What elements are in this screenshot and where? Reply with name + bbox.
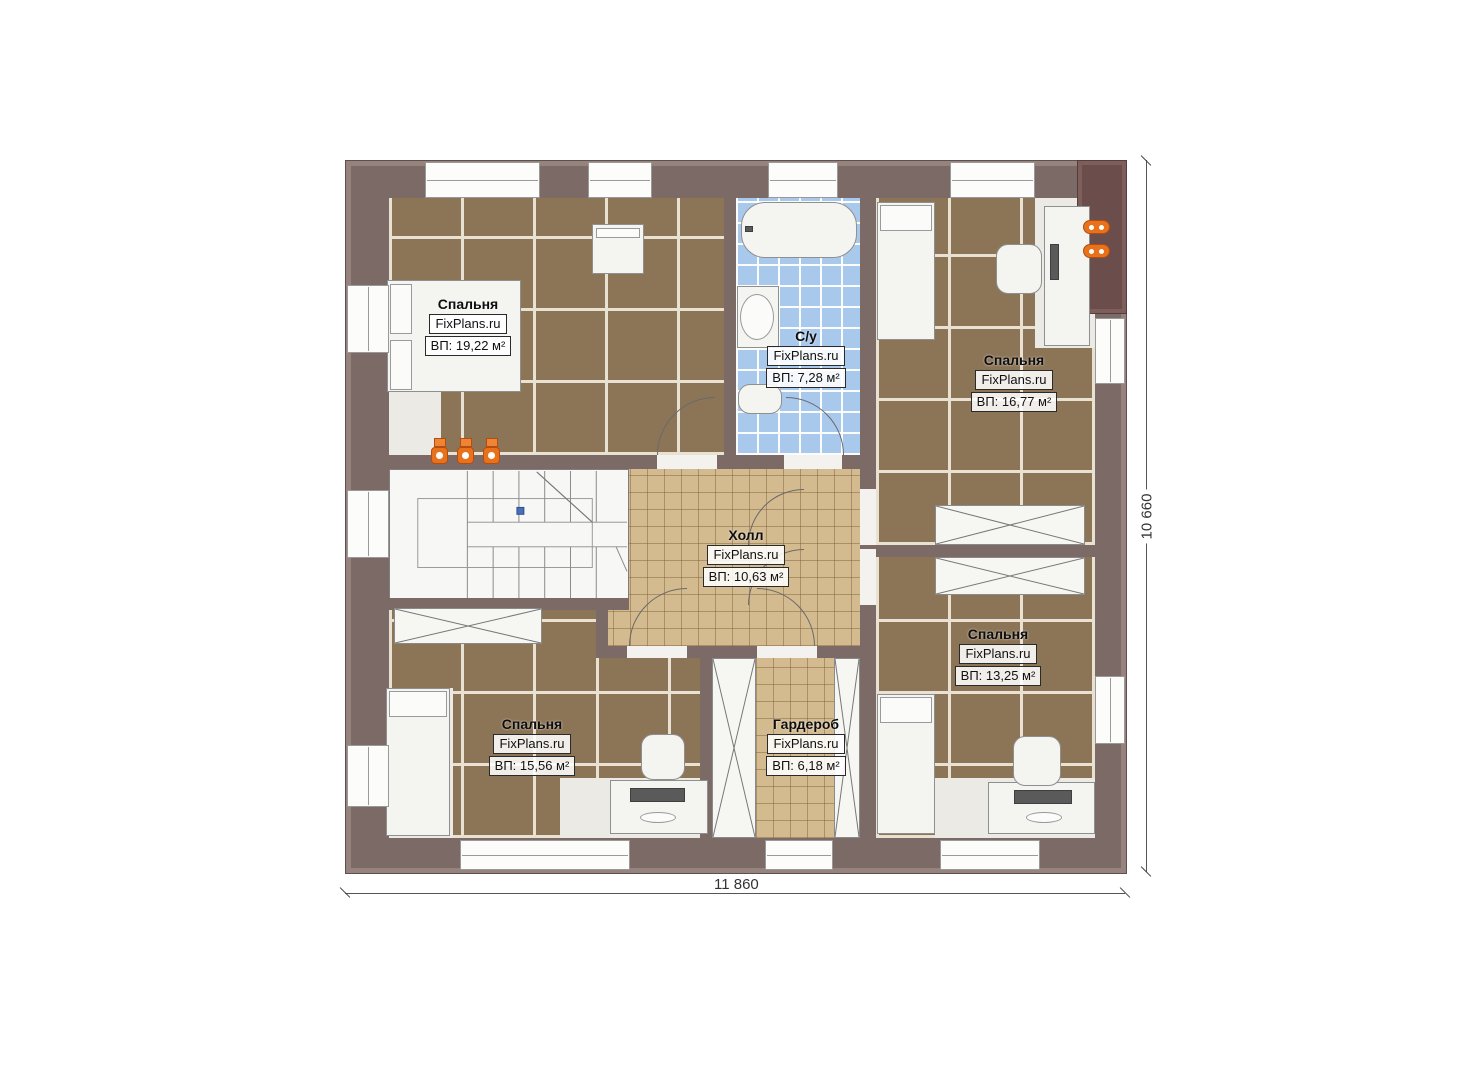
door-bedroom-tr [860, 489, 876, 545]
room-area: ВП: 7,28 м² [766, 368, 845, 388]
room-name: Спальня [968, 626, 1028, 642]
dimension-width-label: 11 860 [710, 876, 763, 893]
window [588, 162, 652, 198]
window [347, 285, 389, 353]
window [1095, 676, 1125, 744]
dimension-height-label: 10 660 [1138, 490, 1155, 544]
radiator [430, 438, 450, 464]
pillow [880, 697, 932, 723]
door-bathroom [784, 455, 842, 469]
window [347, 745, 389, 807]
wardrobe-cabinet [394, 608, 542, 644]
door-bedroom-tl [657, 455, 717, 469]
wall-tr-br [876, 545, 1095, 557]
chair [641, 734, 685, 780]
pillow [389, 691, 447, 717]
window [347, 490, 389, 558]
window [940, 840, 1040, 870]
room-area: ВП: 10,63 м² [703, 567, 790, 587]
door-bedroom-bl [627, 646, 687, 658]
room-brand: FixPlans.ru [975, 370, 1052, 390]
wardrobe-cabinet [935, 557, 1085, 595]
wardrobe-cabinet [935, 505, 1085, 545]
room-brand: FixPlans.ru [493, 734, 570, 754]
radiator [482, 438, 502, 464]
room-area: ВП: 13,25 м² [955, 666, 1042, 686]
room-label-bathroom: С/у FixPlans.ru ВП: 7,28 м² [746, 328, 866, 388]
keyboard [1014, 790, 1072, 804]
chair [1013, 736, 1061, 786]
floor-plan: Спальня FixPlans.ru ВП: 19,22 м² С/у Fix… [0, 0, 1474, 1080]
room-brand: FixPlans.ru [767, 346, 844, 366]
radiator [456, 438, 476, 464]
stairs [389, 469, 629, 600]
room-brand: FixPlans.ru [959, 644, 1036, 664]
tv [596, 228, 640, 238]
monitor [1050, 244, 1059, 280]
door-wardrobe [757, 646, 817, 658]
room-label-bedroom-bl: Спальня FixPlans.ru ВП: 15,56 м² [468, 716, 596, 776]
room-area: ВП: 19,22 м² [425, 336, 512, 356]
room-name: Спальня [502, 716, 562, 732]
room-brand: FixPlans.ru [707, 545, 784, 565]
window [765, 840, 833, 870]
keyboard [630, 788, 685, 802]
wall-tl-bath [724, 198, 736, 455]
faucet [745, 226, 753, 232]
bathtub [741, 202, 857, 258]
room-name: Холл [728, 527, 763, 543]
window [460, 840, 630, 870]
room-area: ВП: 16,77 м² [971, 392, 1058, 412]
door-bedroom-br [860, 549, 876, 605]
window [1095, 318, 1125, 384]
room-name: Спальня [984, 352, 1044, 368]
room-label-hall: Холл FixPlans.ru ВП: 10,63 м² [688, 527, 804, 587]
pillow [880, 205, 932, 231]
room-label-bedroom-tr: Спальня FixPlans.ru ВП: 16,77 м² [952, 352, 1076, 412]
window [768, 162, 838, 198]
radiator [1083, 244, 1110, 258]
radiator [1083, 220, 1110, 234]
room-label-bedroom-tl: Спальня FixPlans.ru ВП: 19,22 м² [408, 296, 528, 356]
room-label-wardrobe: Гардероб FixPlans.ru ВП: 6,18 м² [744, 716, 868, 776]
room-name: Гардероб [773, 716, 839, 732]
mouse [640, 812, 676, 823]
mouse [1026, 812, 1062, 823]
room-area: ВП: 15,56 м² [489, 756, 576, 776]
room-brand: FixPlans.ru [429, 314, 506, 334]
room-area: ВП: 6,18 м² [766, 756, 845, 776]
room-brand: FixPlans.ru [767, 734, 844, 754]
room-name: Спальня [438, 296, 498, 312]
room-name: С/у [795, 328, 817, 344]
window [950, 162, 1035, 198]
toilet [738, 384, 782, 414]
window [425, 162, 540, 198]
chair [996, 244, 1042, 294]
dimension-line-bottom [345, 893, 1125, 894]
room-label-bedroom-br: Спальня FixPlans.ru ВП: 13,25 м² [936, 626, 1060, 686]
